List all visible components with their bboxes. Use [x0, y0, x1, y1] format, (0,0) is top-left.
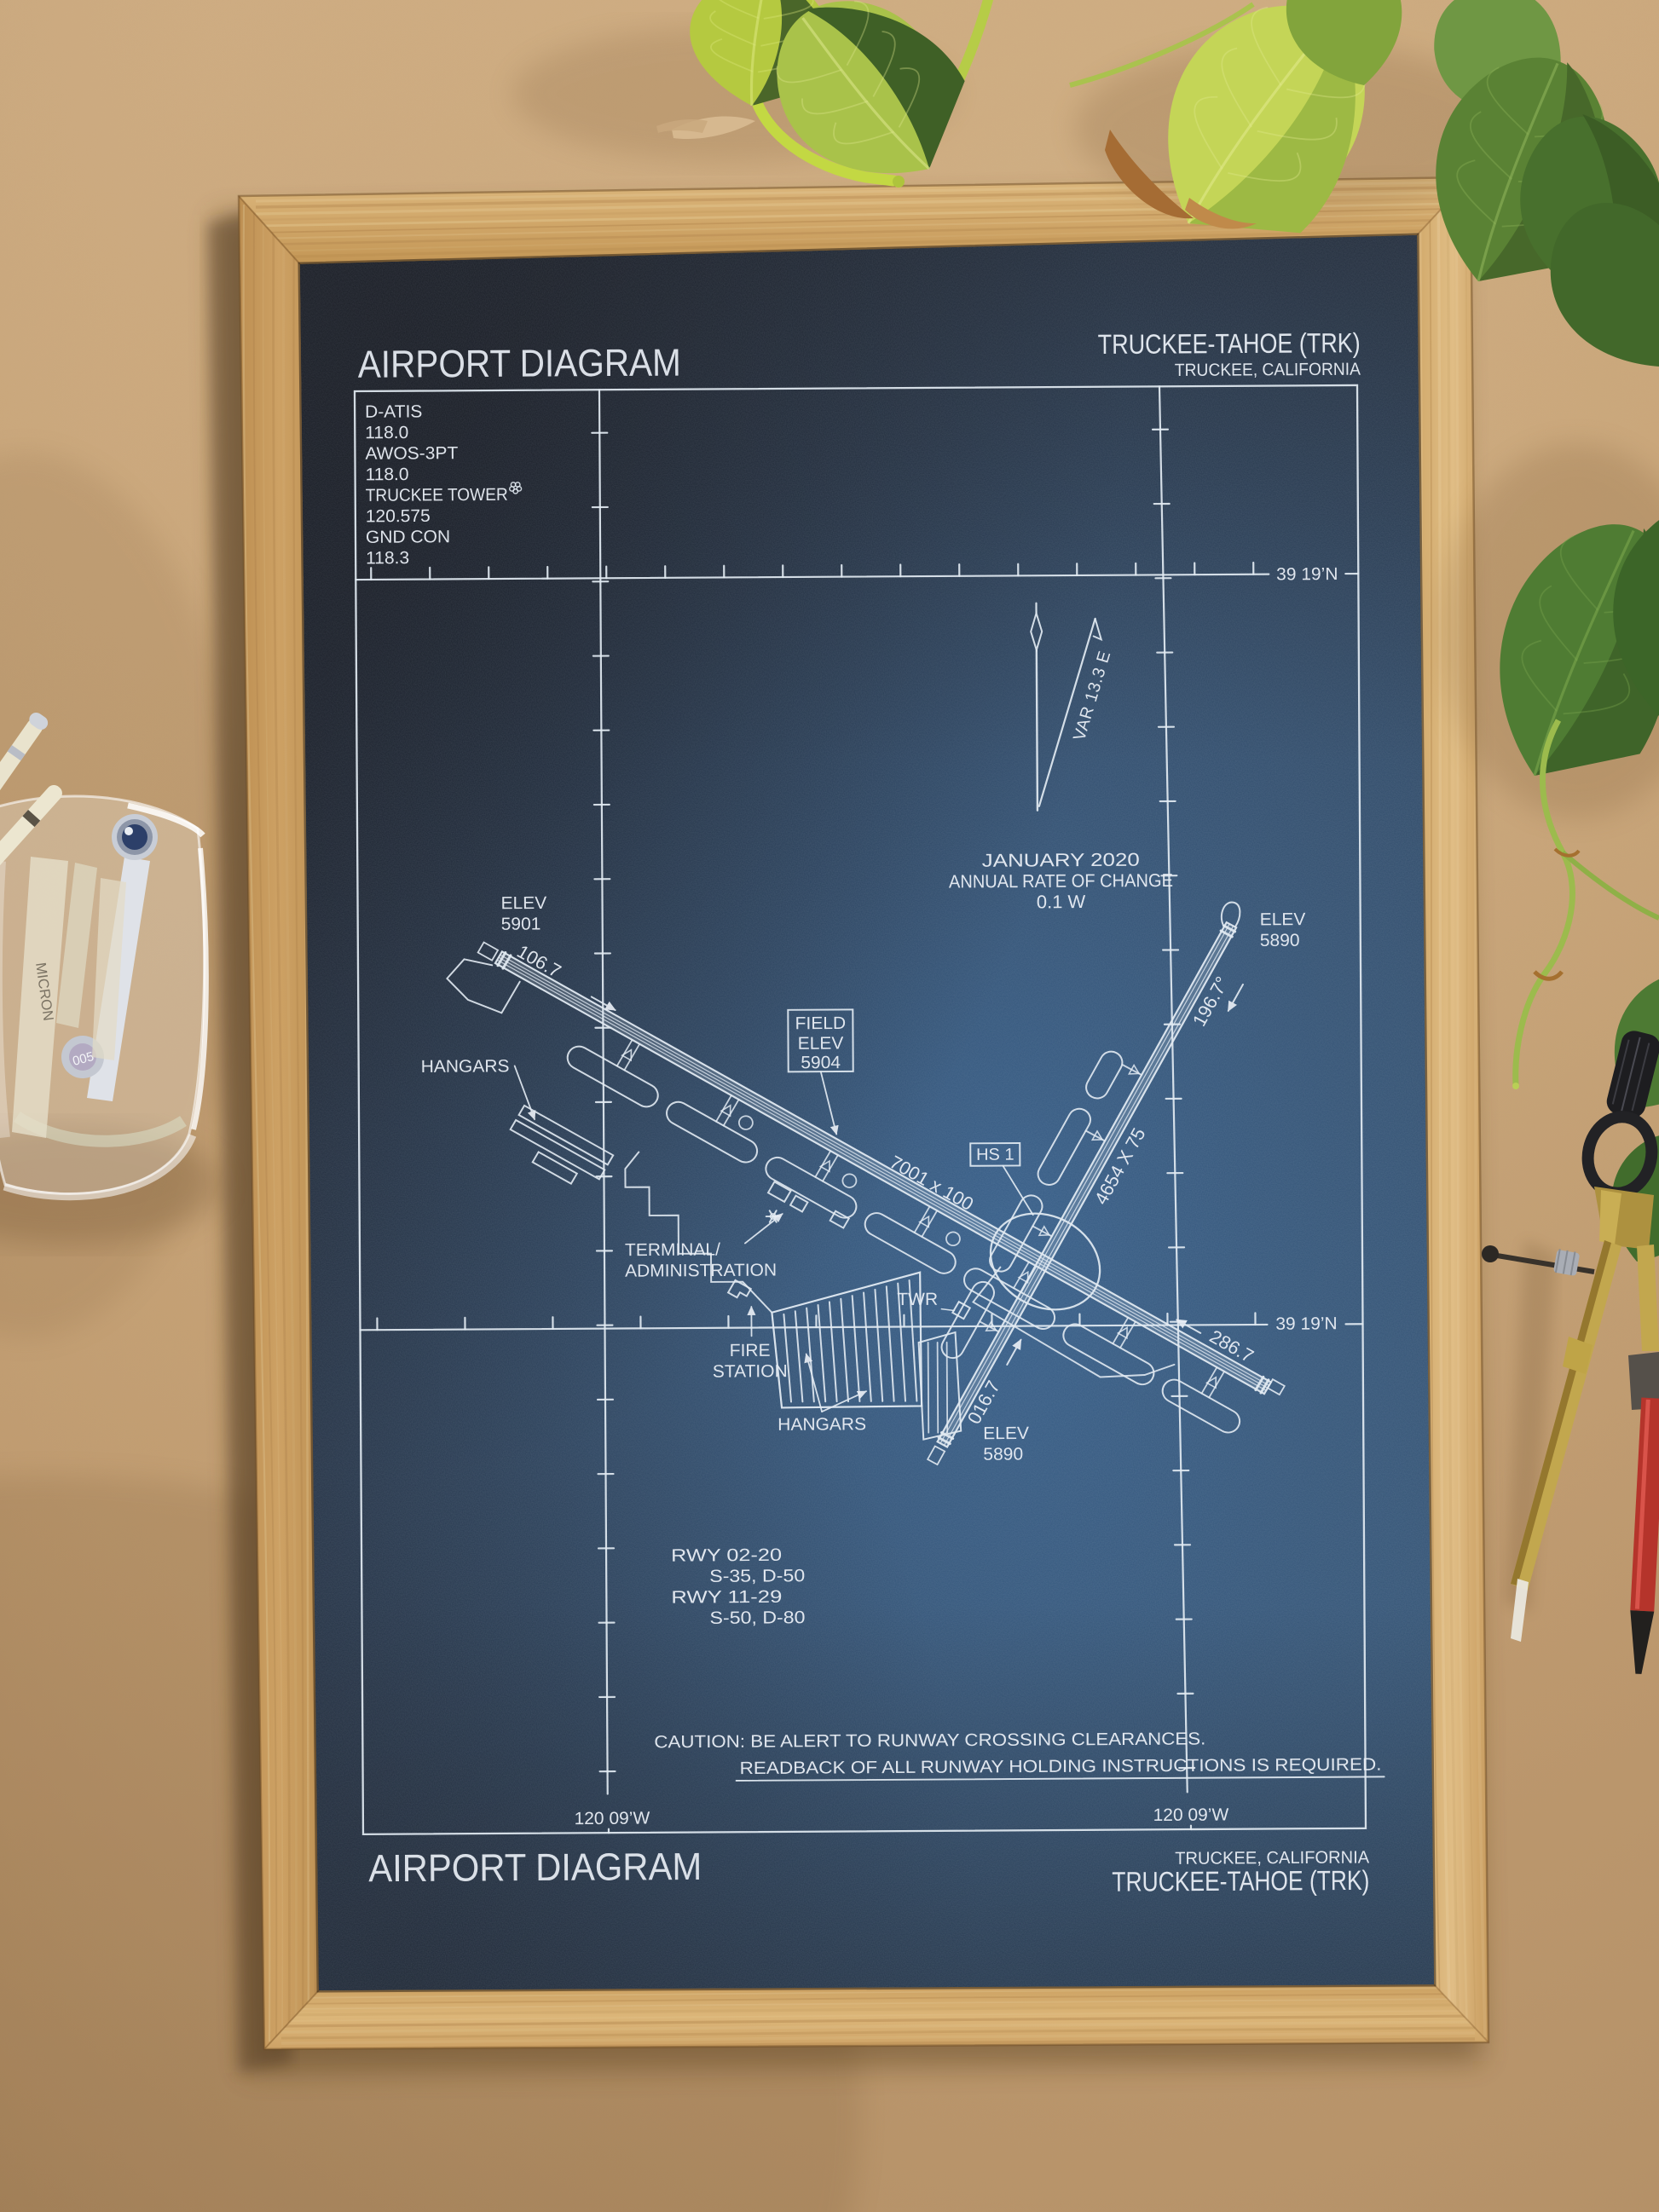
svg-text:AWOS-3PT: AWOS-3PT [365, 443, 458, 463]
svg-text:ELEV: ELEV [983, 1424, 1029, 1443]
svg-text:ADMINISTRATION: ADMINISTRATION [625, 1261, 777, 1281]
svg-text:118.0: 118.0 [366, 465, 409, 484]
svg-text:HANGARS: HANGARS [777, 1415, 866, 1435]
svg-text:RWY 11-29: RWY 11-29 [671, 1587, 782, 1608]
svg-text:GND CON: GND CON [366, 527, 450, 546]
svg-text:5904: 5904 [801, 1053, 841, 1072]
svg-text:TRUCKEE, CALIFORNIA: TRUCKEE, CALIFORNIA [1175, 360, 1361, 380]
svg-text:AIRPORT DIAGRAM: AIRPORT DIAGRAM [368, 1845, 702, 1890]
svg-text:S-35, D-50: S-35, D-50 [709, 1566, 805, 1585]
svg-text:READBACK OF ALL RUNWAY HOLDING: READBACK OF ALL RUNWAY HOLDING INSTRUCTI… [739, 1755, 1381, 1778]
svg-text:120 09’W: 120 09’W [574, 1809, 650, 1828]
svg-text:TRUCKEE-TAHOE (TRK): TRUCKEE-TAHOE (TRK) [1112, 1864, 1369, 1897]
svg-text:CAUTION: BE ALERT TO RUNWAY CR: CAUTION: BE ALERT TO RUNWAY CROSSING CLE… [654, 1730, 1205, 1753]
svg-text:5890: 5890 [983, 1445, 1023, 1464]
svg-text:JANUARY 2020: JANUARY 2020 [982, 849, 1140, 871]
svg-text:118.0: 118.0 [365, 423, 408, 442]
svg-text:118.3: 118.3 [366, 548, 409, 568]
svg-text:TERMINAL/: TERMINAL/ [625, 1240, 720, 1260]
svg-text:ANNUAL RATE OF CHANGE: ANNUAL RATE OF CHANGE [949, 869, 1173, 892]
svg-text:TWR: TWR [897, 1290, 938, 1309]
svg-text:120.575: 120.575 [366, 506, 431, 526]
svg-text:5901: 5901 [501, 915, 541, 934]
svg-text:ELEV: ELEV [1260, 910, 1306, 929]
svg-text:120 09’W: 120 09’W [1153, 1805, 1228, 1825]
svg-text:HANGARS: HANGARS [421, 1057, 510, 1077]
svg-text:STATION: STATION [713, 1361, 788, 1381]
svg-text:AIRPORT DIAGRAM: AIRPORT DIAGRAM [358, 341, 681, 386]
svg-text:39 19’N: 39 19’N [1275, 1314, 1337, 1333]
svg-text:D-ATIS: D-ATIS [365, 402, 422, 422]
svg-text:TRUCKEE-TAHOE (TRK): TRUCKEE-TAHOE (TRK) [1098, 326, 1361, 359]
svg-text:FIELD: FIELD [795, 1014, 847, 1033]
svg-text:FIRE: FIRE [730, 1341, 771, 1360]
svg-text:5890: 5890 [1260, 931, 1300, 950]
svg-text:HS 1: HS 1 [976, 1146, 1014, 1164]
svg-text:ELEV: ELEV [798, 1034, 844, 1054]
svg-text:S-50, D-80: S-50, D-80 [709, 1608, 805, 1627]
svg-text:TRUCKEE TOWER: TRUCKEE TOWER [366, 485, 508, 505]
svg-text:ELEV: ELEV [500, 893, 546, 913]
svg-text:39 19’N: 39 19’N [1276, 564, 1338, 584]
svg-text:0.1 W: 0.1 W [1037, 891, 1086, 912]
svg-text:RWY 02-20: RWY 02-20 [671, 1545, 782, 1566]
